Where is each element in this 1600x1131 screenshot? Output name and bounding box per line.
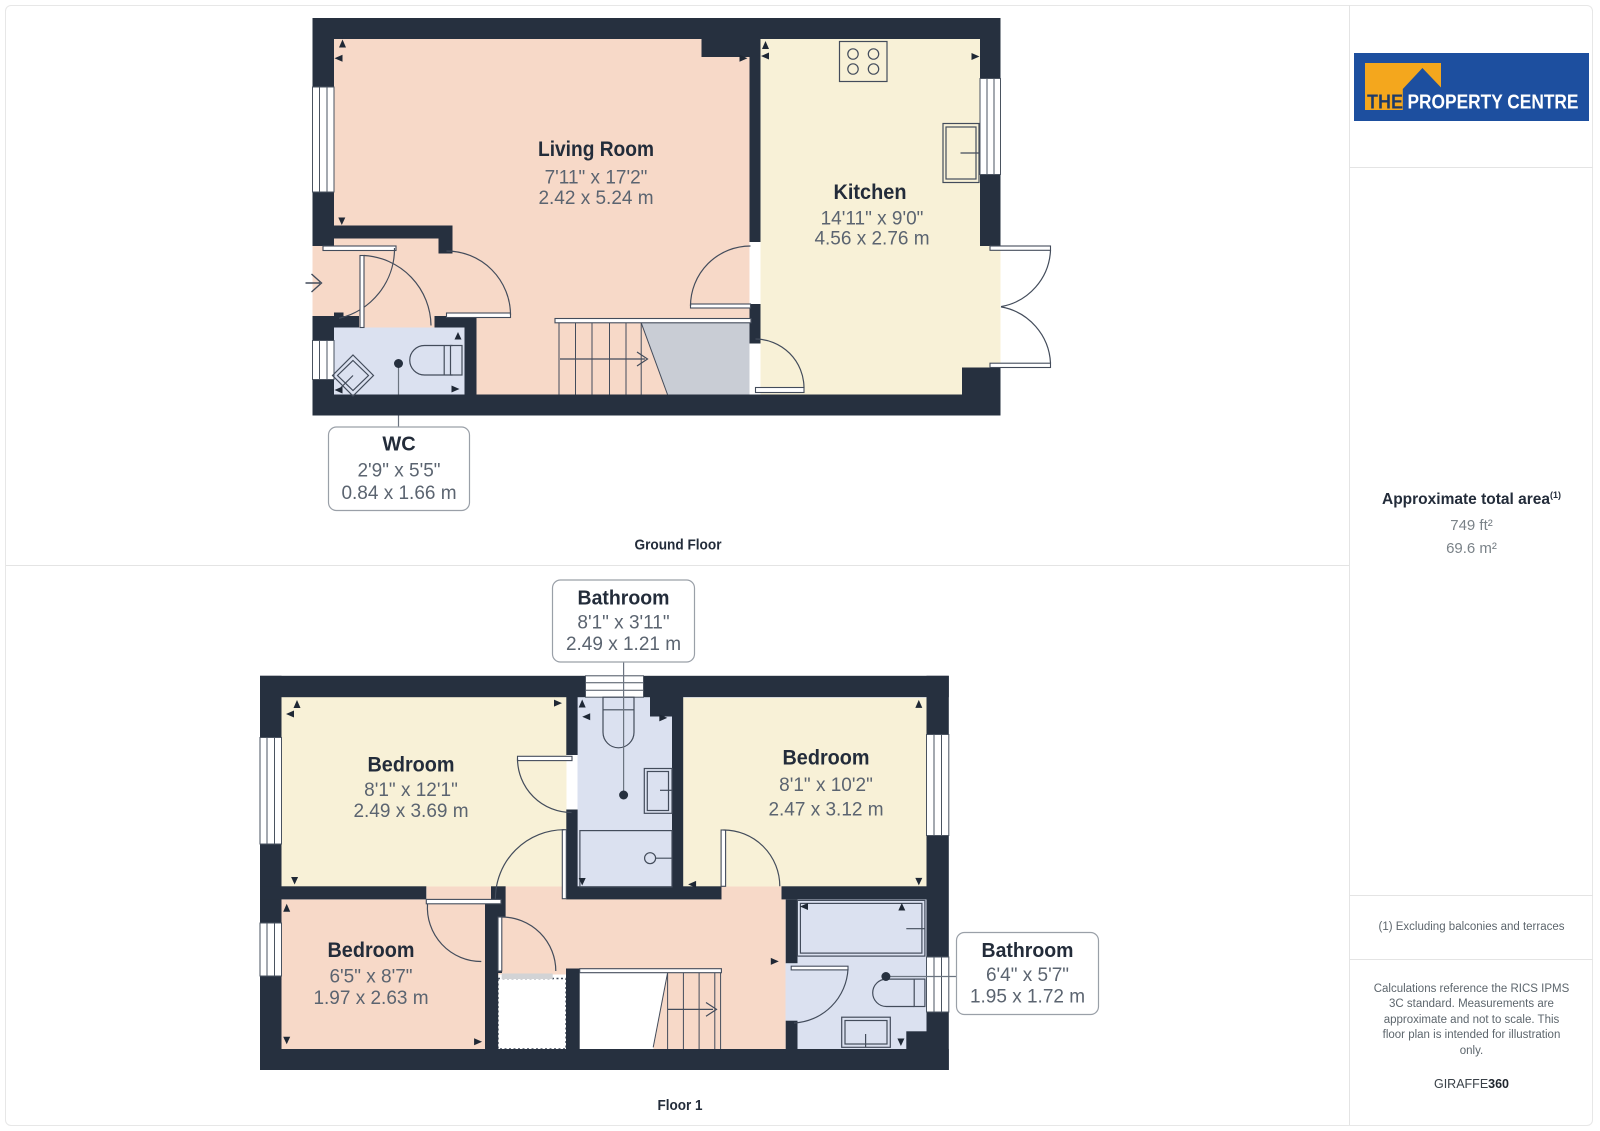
svg-text:2.49 x 3.69 m: 2.49 x 3.69 m [353, 801, 468, 822]
svg-text:Kitchen: Kitchen [834, 181, 907, 204]
svg-text:Bathroom: Bathroom [578, 588, 670, 610]
svg-text:WC: WC [382, 434, 415, 456]
svg-text:2.47 x 3.12 m: 2.47 x 3.12 m [768, 800, 883, 821]
svg-text:1.95 x 1.72 m: 1.95 x 1.72 m [970, 987, 1085, 1008]
svg-text:Bedroom: Bedroom [783, 747, 870, 770]
svg-text:Living Room: Living Room [538, 138, 654, 161]
svg-text:0.84 x 1.66 m: 0.84 x 1.66 m [341, 483, 456, 504]
svg-text:8'1" x 10'2": 8'1" x 10'2" [779, 775, 873, 796]
svg-text:Bedroom: Bedroom [328, 939, 415, 962]
svg-text:Bathroom: Bathroom [982, 940, 1074, 962]
svg-text:8'1" x 12'1": 8'1" x 12'1" [364, 780, 458, 801]
svg-text:8'1" x 3'11": 8'1" x 3'11" [577, 613, 669, 634]
svg-text:14'11" x 9'0": 14'11" x 9'0" [821, 209, 924, 230]
svg-text:6'5" x 8'7": 6'5" x 8'7" [329, 967, 412, 988]
svg-text:THE: THE [1367, 91, 1403, 113]
svg-text:2'9" x 5'5": 2'9" x 5'5" [357, 461, 440, 482]
svg-text:PROPERTY CENTRE: PROPERTY CENTRE [1408, 91, 1579, 113]
svg-text:2.49 x 1.21 m: 2.49 x 1.21 m [566, 634, 681, 655]
svg-text:7'11" x 17'2": 7'11" x 17'2" [545, 168, 648, 189]
svg-text:2.42 x 5.24 m: 2.42 x 5.24 m [538, 188, 653, 209]
svg-text:Bedroom: Bedroom [368, 754, 455, 777]
svg-text:1.97 x 2.63 m: 1.97 x 2.63 m [313, 988, 428, 1009]
svg-text:Floor 1: Floor 1 [658, 1097, 703, 1114]
svg-text:4.56 x 2.76 m: 4.56 x 2.76 m [814, 229, 929, 250]
svg-text:Ground Floor: Ground Floor [635, 537, 722, 554]
svg-text:6'4" x 5'7": 6'4" x 5'7" [986, 965, 1069, 986]
